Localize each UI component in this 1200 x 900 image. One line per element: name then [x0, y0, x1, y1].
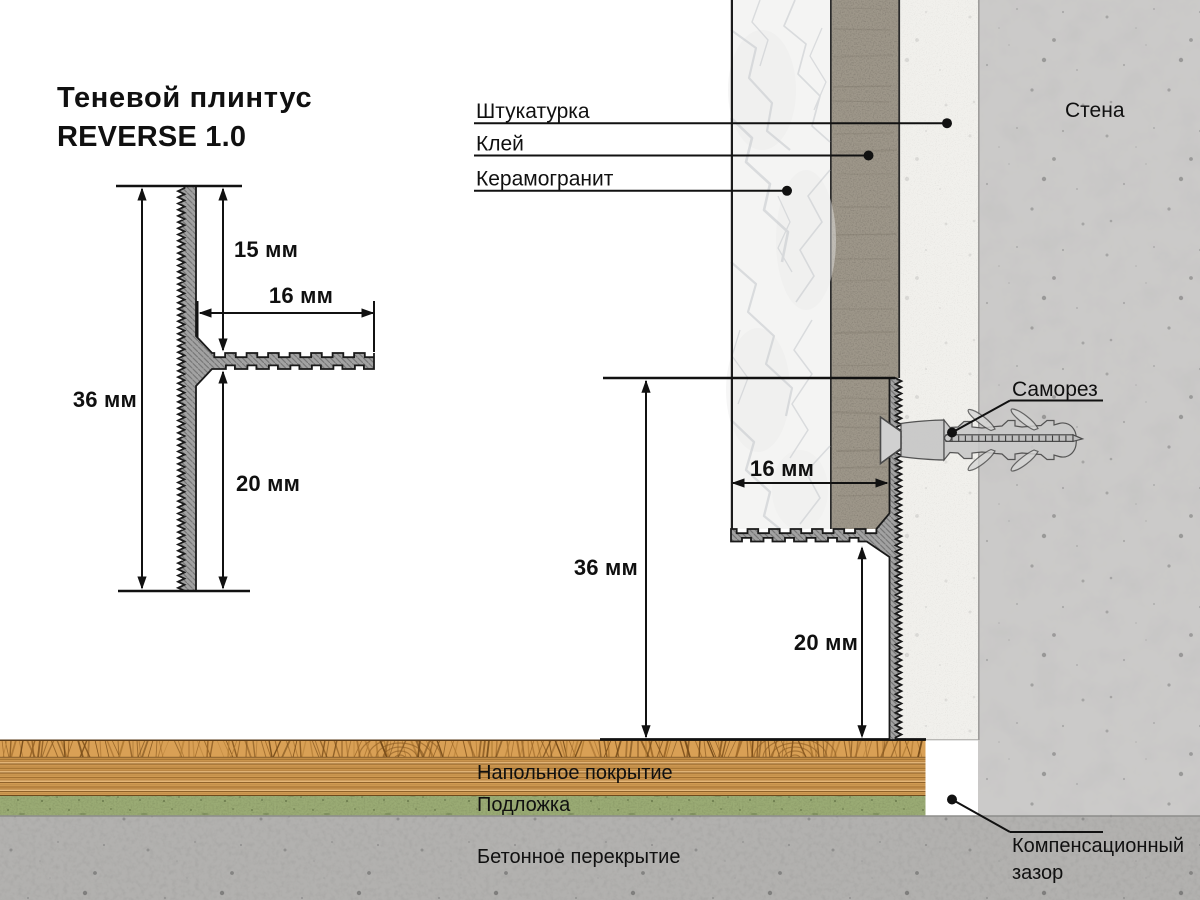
svg-text:Компенсационный: Компенсационный	[1012, 835, 1184, 857]
svg-text:Стена: Стена	[1065, 99, 1125, 122]
svg-text:16 мм: 16 мм	[750, 456, 814, 481]
svg-text:Напольное покрытие: Напольное покрытие	[477, 762, 673, 784]
svg-text:Штукатурка: Штукатурка	[476, 100, 590, 123]
svg-text:20 мм: 20 мм	[236, 471, 300, 496]
svg-text:зазор: зазор	[1012, 862, 1063, 884]
svg-text:Саморез: Саморез	[1012, 378, 1098, 401]
svg-text:36 мм: 36 мм	[574, 555, 638, 580]
svg-text:36 мм: 36 мм	[73, 387, 137, 412]
svg-text:16 мм: 16 мм	[269, 283, 333, 308]
svg-text:15 мм: 15 мм	[234, 237, 298, 262]
svg-text:Теневой плинтус: Теневой плинтус	[57, 82, 312, 114]
svg-text:Бетонное перекрытие: Бетонное перекрытие	[477, 846, 680, 868]
svg-text:20 мм: 20 мм	[794, 630, 858, 655]
svg-text:REVERSE 1.0: REVERSE 1.0	[57, 121, 246, 153]
svg-text:Подложка: Подложка	[477, 794, 571, 816]
svg-text:Керамогранит: Керамогранит	[476, 168, 614, 191]
svg-text:Клей: Клей	[476, 133, 524, 156]
